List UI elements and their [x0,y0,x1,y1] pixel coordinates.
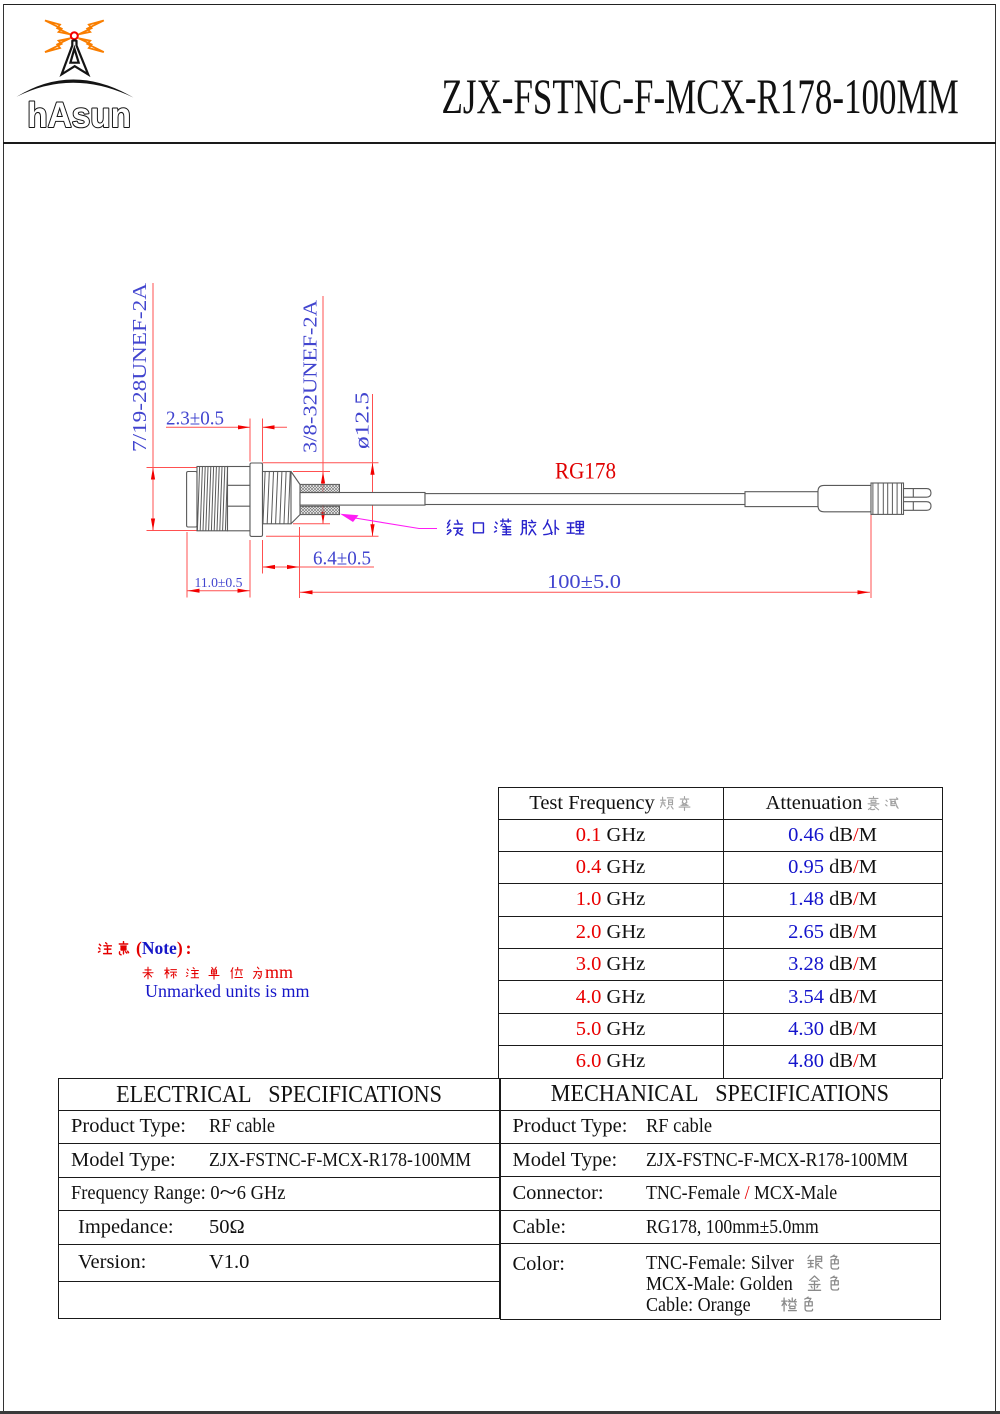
svg-text:6.4±0.5: 6.4±0.5 [313,548,371,570]
svg-text:100±5.0: 100±5.0 [547,571,621,593]
svg-text:3/8-32UNEF-2A: 3/8-32UNEF-2A [300,299,322,453]
svg-text:2.3±0.5: 2.3±0.5 [166,408,224,430]
svg-text:ø12.5: ø12.5 [352,392,374,449]
svg-text:hAsun: hAsun [27,96,131,135]
svg-text:RG178: RG178 [555,459,616,484]
svg-text:7/19-28UNEF-2A: 7/19-28UNEF-2A [129,282,151,452]
svg-text:11.0±0.5: 11.0±0.5 [195,575,243,590]
